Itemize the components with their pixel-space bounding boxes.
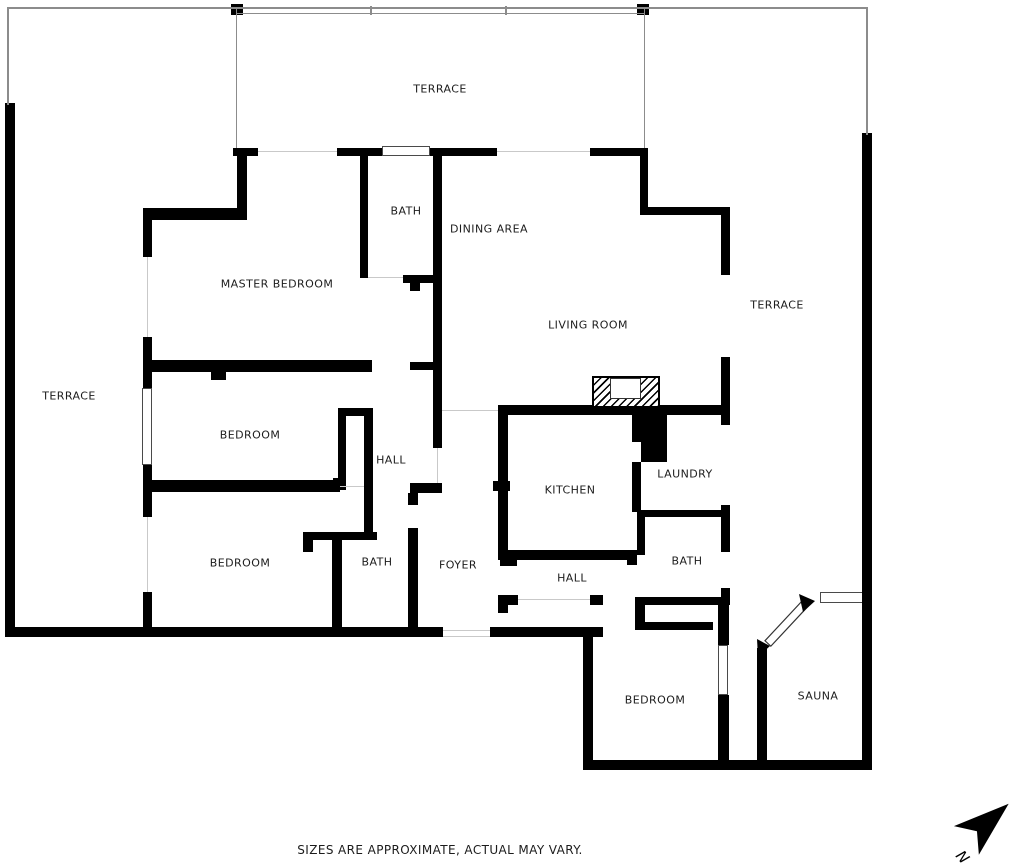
compass-letter: N [952,847,973,867]
disclaimer-text: SIZES ARE APPROXIMATE, ACTUAL MAY VARY. [297,843,582,857]
compass-north-arrow: N [946,792,1016,868]
floor-plan: TERRACE BATH DINING AREA MASTER BEDROOM … [0,0,1016,868]
sauna-door-drawing [0,0,1016,868]
